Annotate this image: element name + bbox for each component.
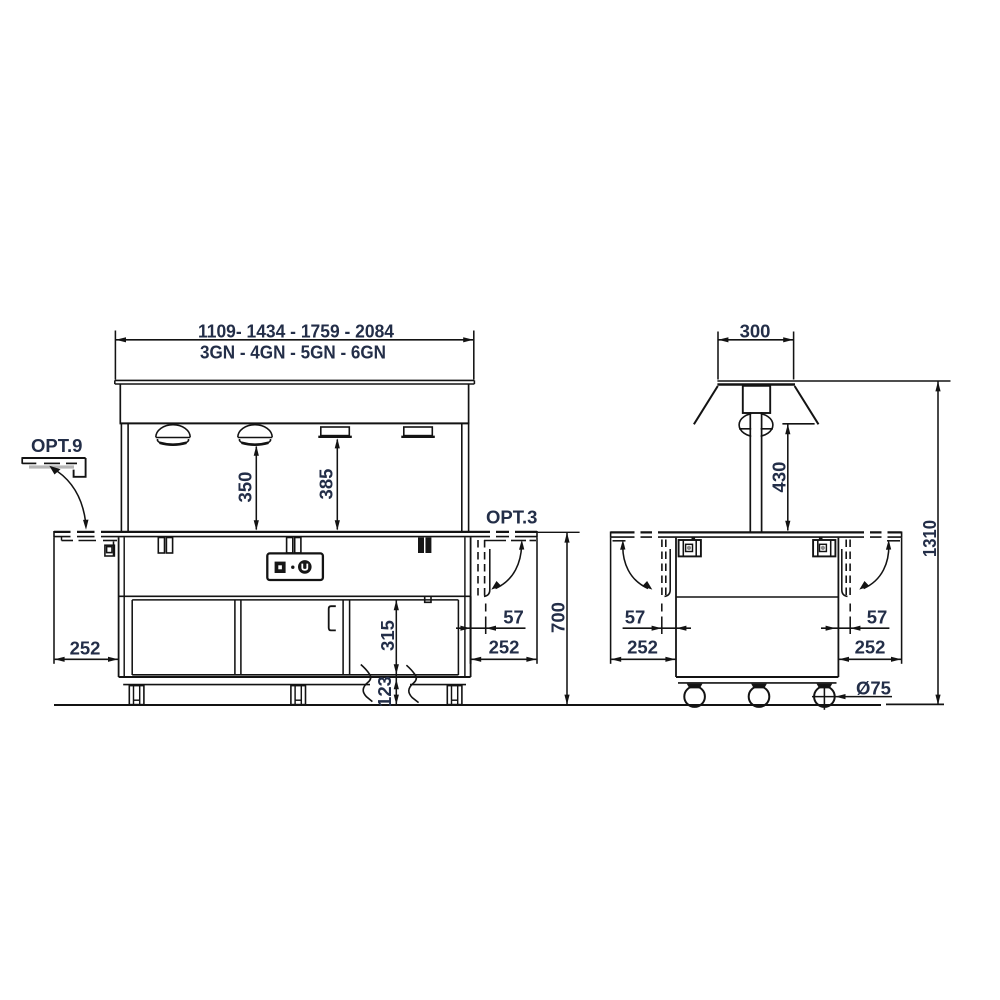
svg-text:430: 430 — [769, 462, 790, 493]
svg-text:57: 57 — [867, 607, 888, 628]
svg-text:1310: 1310 — [919, 520, 940, 557]
svg-text:700: 700 — [548, 602, 569, 633]
svg-text:Ø75: Ø75 — [856, 677, 891, 698]
svg-text:OPT.9: OPT.9 — [31, 435, 82, 456]
svg-text:315: 315 — [377, 620, 398, 651]
svg-text:385: 385 — [316, 469, 337, 500]
svg-text:252: 252 — [489, 637, 520, 658]
svg-text:57: 57 — [625, 607, 646, 628]
svg-text:252: 252 — [627, 637, 658, 658]
svg-text:252: 252 — [855, 637, 886, 658]
svg-text:3GN - 4GN - 5GN - 6GN: 3GN - 4GN - 5GN - 6GN — [200, 342, 386, 363]
svg-text:57: 57 — [503, 607, 524, 628]
svg-text:123: 123 — [374, 676, 395, 707]
svg-text:OPT.3: OPT.3 — [486, 506, 537, 527]
svg-text:1109- 1434 - 1759 - 2084: 1109- 1434 - 1759 - 2084 — [198, 321, 395, 342]
svg-text:300: 300 — [740, 321, 771, 342]
svg-text:252: 252 — [70, 638, 101, 659]
svg-text:350: 350 — [234, 472, 255, 503]
